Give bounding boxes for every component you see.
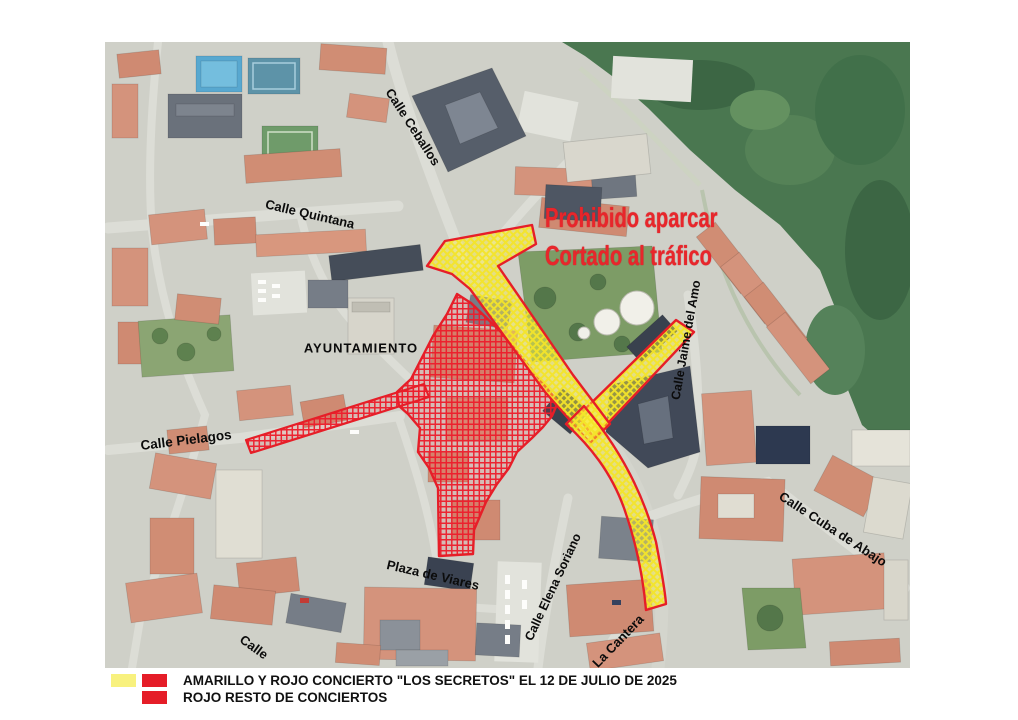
satellite-map [105,42,910,668]
legend-row: ROJO RESTO DE CONCIERTOS [111,689,677,706]
legend-row-text: AMARILLO Y ROJO CONCIERTO "LOS SECRETOS"… [183,673,677,688]
water-tank [594,309,620,335]
annotation-line-2: Cortado al tráfico [545,237,718,275]
annotation-line-1: Prohibido aparcar [545,199,718,237]
legend: AMARILLO Y ROJO CONCIERTO "LOS SECRETOS"… [111,672,677,706]
map-canvas [105,42,910,668]
legend-swatch-red [142,691,167,704]
water-tank [620,291,654,325]
page: Prohibido aparcar Cortado al tráfico Cal… [0,0,1018,720]
legend-row-text: ROJO RESTO DE CONCIERTOS [183,690,387,705]
legend-swatch-yellow [111,674,136,687]
legend-row: AMARILLO Y ROJO CONCIERTO "LOS SECRETOS"… [111,672,677,689]
map-annotation-text: Prohibido aparcar Cortado al tráfico [545,199,718,275]
legend-swatch-red [142,674,167,687]
